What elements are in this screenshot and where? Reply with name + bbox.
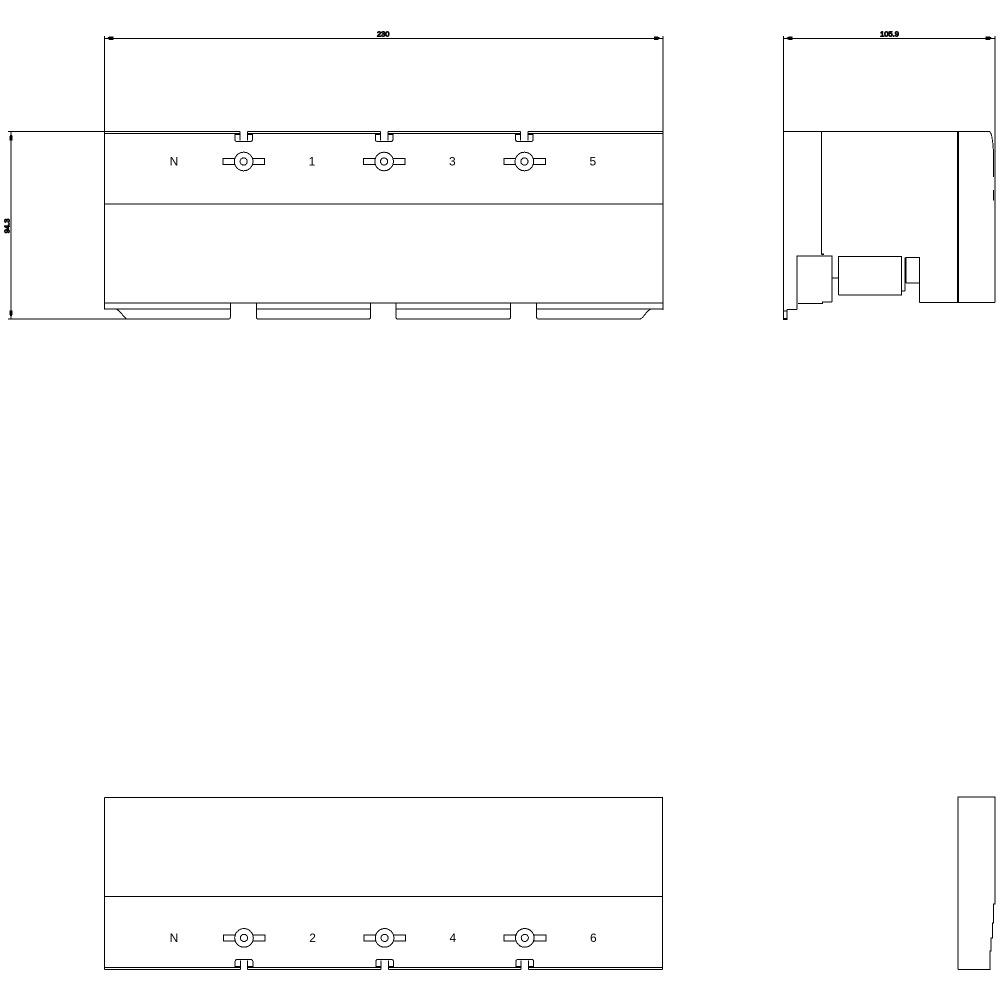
svg-text:1: 1 [309, 155, 316, 169]
svg-text:105.9: 105.9 [880, 30, 899, 39]
svg-text:N: N [170, 155, 179, 169]
svg-text:6: 6 [590, 931, 597, 945]
svg-text:N: N [170, 931, 179, 945]
svg-text:230: 230 [377, 30, 390, 39]
svg-text:3: 3 [449, 155, 456, 169]
svg-text:94.3: 94.3 [3, 219, 12, 234]
svg-text:4: 4 [449, 931, 456, 945]
svg-text:5: 5 [589, 155, 596, 169]
svg-text:2: 2 [309, 931, 316, 945]
